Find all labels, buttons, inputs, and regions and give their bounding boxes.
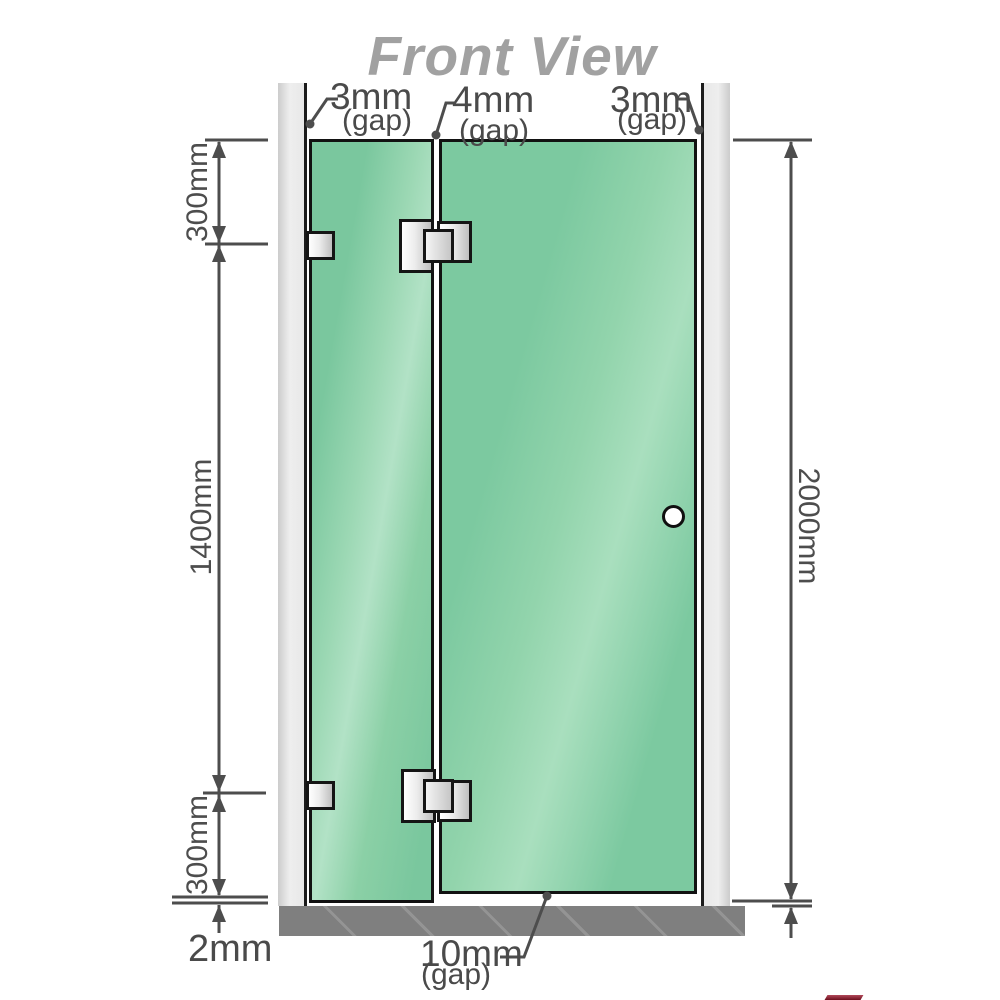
dim-left-top-label: 300mm xyxy=(181,142,215,242)
dim-right-height-label: 2000mm xyxy=(791,468,825,585)
door-glass-panel xyxy=(439,139,697,894)
gap-top-right-unit: (gap) xyxy=(617,103,687,137)
right-wall-profile xyxy=(701,83,730,906)
arrow-down-right-bottom xyxy=(784,883,798,900)
arrow-up-right-base xyxy=(784,907,798,924)
front-view-diagram: Front View xyxy=(0,0,1000,1000)
gap-bottom-center-unit: (gap) xyxy=(421,958,491,992)
arrow-up-244 xyxy=(212,245,226,262)
bottom-hinge-knuckle xyxy=(423,779,454,813)
wall-bracket-top xyxy=(306,231,335,260)
left-wall-profile xyxy=(278,83,307,906)
arrow-up-2mm xyxy=(212,905,226,922)
gap-top-center-unit: (gap) xyxy=(459,114,529,148)
dim-left-bottom-label: 300mm xyxy=(181,795,215,895)
watermark-sliver xyxy=(825,995,864,1000)
dim-floor-clearance-label: 2mm xyxy=(188,928,272,971)
arrow-up-right-top xyxy=(784,141,798,158)
arrow-down-793 xyxy=(212,775,226,792)
top-hinge-knuckle xyxy=(423,229,454,263)
floor-base-bar xyxy=(279,906,745,936)
gap-top-left-unit: (gap) xyxy=(342,104,412,138)
door-handle-knob xyxy=(662,505,685,528)
wall-bracket-bottom xyxy=(306,781,335,810)
dim-left-middle-label: 1400mm xyxy=(185,459,219,576)
